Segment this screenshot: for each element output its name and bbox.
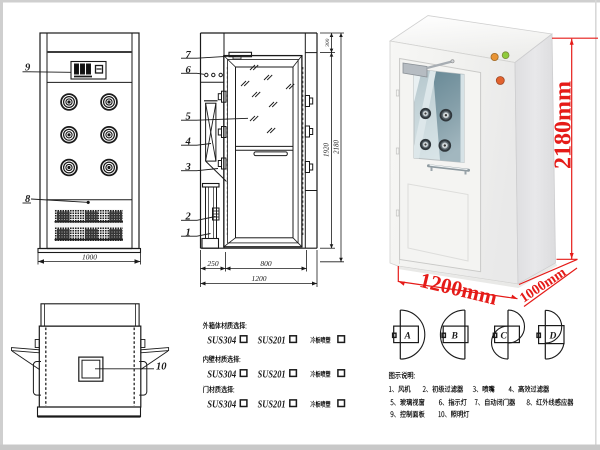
svg-text:3: 3 bbox=[185, 162, 191, 173]
svg-text:10: 10 bbox=[156, 361, 167, 372]
svg-text:A: A bbox=[404, 331, 411, 341]
svg-text:SUS304: SUS304 bbox=[207, 336, 236, 347]
svg-text:D: D bbox=[549, 331, 557, 341]
svg-text:SUS201: SUS201 bbox=[258, 336, 286, 347]
svg-text:4: 4 bbox=[185, 137, 191, 148]
svg-text:250: 250 bbox=[207, 259, 219, 268]
svg-text:7: 7 bbox=[186, 50, 192, 61]
svg-text:2180mm: 2180mm bbox=[551, 81, 577, 169]
svg-text:SUS201: SUS201 bbox=[258, 400, 286, 411]
svg-text:300: 300 bbox=[325, 38, 331, 48]
svg-text:2180: 2180 bbox=[333, 140, 341, 155]
svg-text:2: 2 bbox=[185, 212, 192, 223]
svg-text:C: C bbox=[501, 331, 508, 341]
svg-text:800: 800 bbox=[260, 259, 272, 268]
svg-text:SUS304: SUS304 bbox=[207, 400, 236, 411]
svg-text:1000: 1000 bbox=[82, 252, 97, 261]
svg-text:SUS304: SUS304 bbox=[207, 370, 236, 381]
svg-text:1920: 1920 bbox=[323, 143, 331, 158]
svg-text:SUS201: SUS201 bbox=[258, 370, 286, 381]
svg-text:1200: 1200 bbox=[252, 274, 267, 283]
svg-text:1: 1 bbox=[186, 228, 191, 239]
svg-text:6: 6 bbox=[186, 65, 192, 76]
svg-text:B: B bbox=[451, 331, 458, 341]
svg-text:5: 5 bbox=[186, 112, 191, 123]
